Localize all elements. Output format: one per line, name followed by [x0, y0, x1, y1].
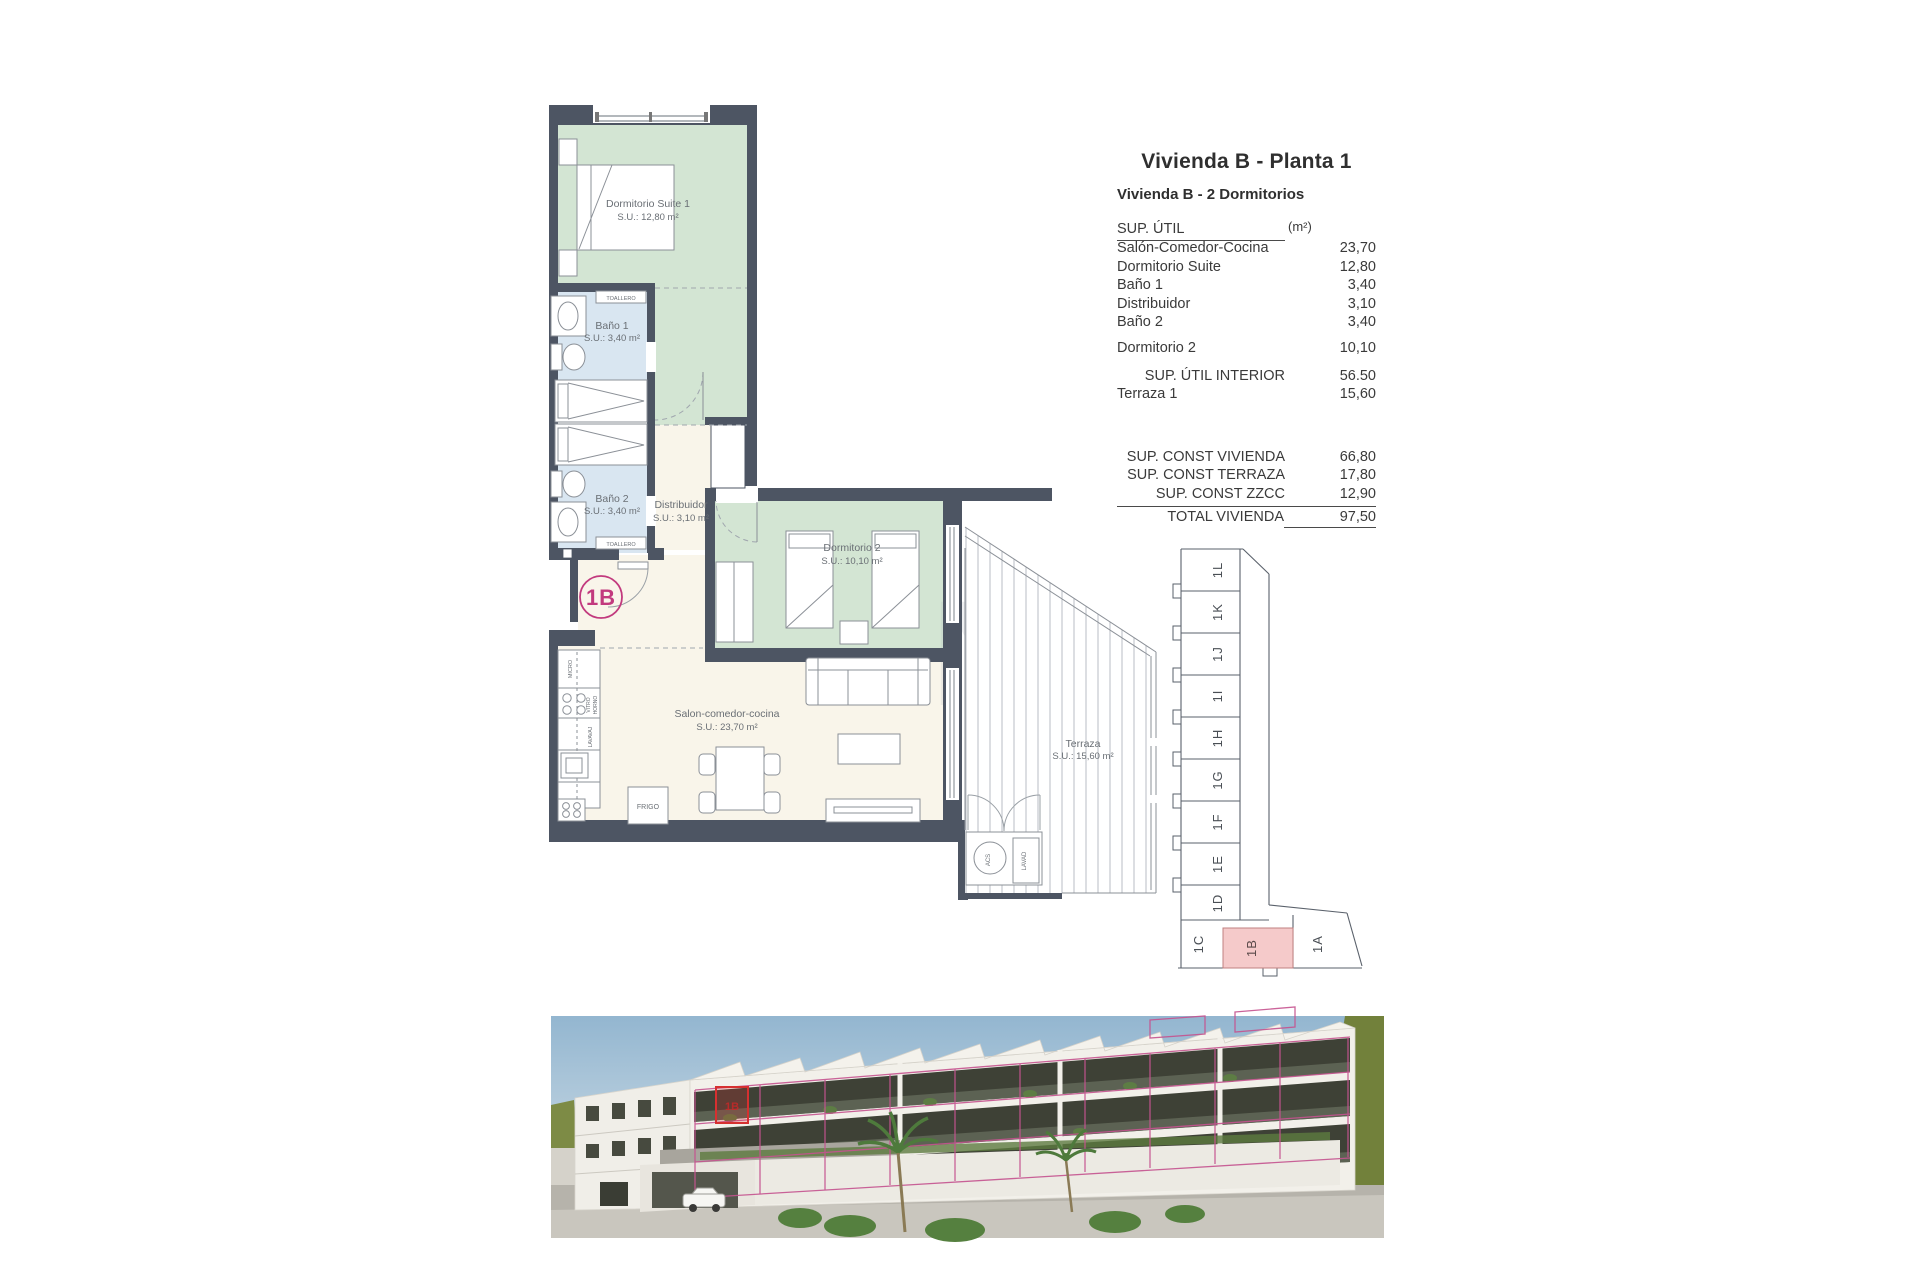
area-row: Terraza 1 15,60 — [1117, 385, 1376, 404]
room-dorm2-name: Dormitorio 2 — [823, 542, 880, 554]
storage-closet — [711, 425, 745, 488]
key-unit-1b-label: 1B — [1244, 939, 1259, 957]
washer-label: LAVAD — [1022, 851, 1028, 870]
room-bath2-area: S.U.: 3,40 m² — [584, 506, 640, 517]
room-salon-area: S.U.: 23,70 m² — [696, 722, 757, 733]
area-summary-panel: Vivienda B - Planta 1 Vivienda B - 2 Dor… — [1117, 150, 1376, 528]
area-row-value: 23,70 — [1285, 239, 1376, 258]
area-table-header-label: SUP. ÚTIL — [1117, 220, 1285, 241]
corridor-floor — [655, 288, 747, 425]
railing-gap — [1148, 738, 1160, 746]
room-suite-area: S.U.: 12,80 m² — [617, 212, 678, 223]
suite-window — [593, 105, 710, 123]
unit-badge-label: 1B — [586, 585, 616, 610]
key-unit-label: 1E — [1210, 855, 1225, 873]
area-row-value: 15,60 — [1285, 385, 1376, 404]
terrace — [965, 527, 1160, 893]
room-dorm2-area: S.U.: 10,10 m² — [821, 556, 882, 567]
toilet — [563, 344, 585, 370]
room-bath1-area: S.U.: 3,40 m² — [584, 333, 640, 344]
area-row-label: Distribuidor — [1117, 295, 1285, 314]
const-row: SUP. CONST TERRAZA 17,80 — [1117, 466, 1376, 485]
area-row-value: 10,10 — [1285, 339, 1376, 358]
const-row: SUP. CONST ZZCC 12,90 — [1117, 485, 1376, 504]
area-row-value: 12,80 — [1285, 258, 1376, 277]
nightstand — [559, 250, 577, 276]
key-unit-label: 1G — [1210, 770, 1225, 789]
vitro-label: VITRO — [586, 697, 592, 712]
area-row: Dormitorio 2 10,10 — [1117, 339, 1376, 358]
cooktop-burner — [563, 694, 571, 702]
room-distribuidor-area: S.U.: 3,10 m² — [653, 513, 709, 524]
railing-gap — [1148, 795, 1160, 803]
key-unit-label: 1J — [1210, 646, 1225, 662]
toilet-tank — [551, 471, 562, 497]
area-row: Baño 1 3,40 — [1117, 276, 1376, 295]
toilet — [563, 471, 585, 497]
key-unit-label: 1C — [1191, 935, 1206, 954]
const-row: SUP. CONST VIVIENDA 66,80 — [1117, 448, 1376, 467]
room-terrace-area: S.U.: 15,60 m² — [1052, 751, 1113, 762]
area-row-label: Dormitorio 2 — [1117, 339, 1285, 358]
micro-label: MICRO — [568, 659, 574, 678]
area-row: Dormitorio Suite 12,80 — [1117, 258, 1376, 277]
fridge-label: FRIGO — [637, 804, 660, 811]
nightstand — [559, 139, 577, 165]
total-row: TOTAL VIVIENDA 97,50 — [1117, 506, 1376, 529]
render-highlight-unit: 1B — [716, 1087, 748, 1123]
sofa — [806, 658, 930, 705]
towel-rack-label: TOALLERO — [606, 296, 636, 302]
room-terrace-name: Terraza — [1065, 738, 1100, 750]
area-row-label: Dormitorio Suite — [1117, 258, 1285, 277]
acs-label: ACS — [986, 854, 992, 866]
towel-rack-label: TOALLERO — [606, 542, 636, 548]
appliance — [558, 799, 585, 821]
key-unit-label: 1H — [1210, 729, 1225, 748]
wardrobe — [555, 424, 647, 465]
balcony-notches — [1173, 584, 1277, 976]
sheet-subtitle: Vivienda B - 2 Dormitorios — [1117, 186, 1376, 203]
wardrobe — [555, 380, 647, 422]
floor-plan: N — [549, 105, 1160, 900]
const-row-label: SUP. CONST VIVIENDA — [1117, 448, 1285, 467]
area-row: Baño 2 3,40 — [1117, 313, 1376, 332]
area-table-header: SUP. ÚTIL (m²) — [1117, 220, 1376, 239]
area-table: SUP. ÚTIL (m²) Salón-Comedor-Cocina 23,7… — [1117, 220, 1376, 528]
coffee-table — [838, 734, 900, 764]
const-row-value: 66,80 — [1285, 448, 1376, 467]
unit-key-diagram: 1L 1K 1J 1I 1H 1G 1F 1E 1D 1C 1B 1A — [1173, 549, 1362, 976]
key-unit-label: 1D — [1210, 894, 1225, 913]
area-subtotal-label: SUP. ÚTIL INTERIOR — [1117, 367, 1285, 386]
area-row-label: Baño 1 — [1117, 276, 1285, 295]
dishwasher-label: LAVAVAJ — [588, 726, 594, 747]
const-row-value: 12,90 — [1285, 485, 1376, 504]
area-row: Salón-Comedor-Cocina 23,70 — [1117, 239, 1376, 258]
render-highlight-label: 1B — [725, 1101, 739, 1113]
chair — [699, 754, 715, 775]
render-entrance — [600, 1182, 628, 1206]
area-subtotal-value: 56.50 — [1285, 367, 1376, 386]
area-row-value: 3,40 — [1285, 276, 1376, 295]
room-suite-name: Dormitorio Suite 1 — [606, 198, 690, 210]
key-unit-1a-label: 1A — [1310, 935, 1325, 953]
dining-table — [716, 747, 764, 810]
area-table-header-unit: (m²) — [1288, 218, 1312, 237]
toilet-tank — [551, 344, 562, 370]
area-row: Distribuidor 3,10 — [1117, 295, 1376, 314]
area-row-label: Baño 2 — [1117, 313, 1285, 332]
const-row-value: 17,80 — [1285, 466, 1376, 485]
plan-sheet-drawing: N — [0, 0, 1920, 1280]
area-row-label: Terraza 1 — [1117, 385, 1285, 404]
area-row-label: Salón-Comedor-Cocina — [1117, 239, 1285, 258]
key-unit-label: 1L — [1210, 562, 1225, 578]
room-salon-name: Salon-comedor-cocina — [674, 708, 779, 720]
building-render: 1B — [551, 1007, 1384, 1242]
room-bath1-name: Baño 1 — [595, 320, 628, 332]
total-row-value-text: 97,50 — [1284, 508, 1376, 529]
key-unit-label: 1F — [1210, 813, 1225, 830]
const-row-label: SUP. CONST ZZCC — [1117, 485, 1285, 504]
chair — [764, 792, 780, 813]
key-unit-label: 1I — [1210, 690, 1225, 703]
const-row-label: SUP. CONST TERRAZA — [1117, 466, 1285, 485]
total-row-label: TOTAL VIVIENDA — [1117, 508, 1284, 529]
key-unit-label: 1K — [1210, 603, 1225, 621]
chair — [699, 792, 715, 813]
area-row-value: 3,10 — [1285, 295, 1376, 314]
plan-sheet-page: N — [0, 0, 1920, 1280]
area-subtotal-row: SUP. ÚTIL INTERIOR 56.50 — [1117, 367, 1376, 386]
horno-label: HORNO — [593, 696, 599, 715]
area-row-value: 3,40 — [1285, 313, 1376, 332]
room-distribuidor-name: Distribuidor — [654, 499, 708, 511]
electrical-box — [563, 549, 572, 558]
nightstand — [840, 621, 868, 644]
total-row-value: 97,50 — [1284, 508, 1376, 529]
sheet-title: Vivienda B - Planta 1 — [1117, 150, 1376, 174]
chair — [764, 754, 780, 775]
room-bath2-name: Baño 2 — [595, 493, 628, 505]
